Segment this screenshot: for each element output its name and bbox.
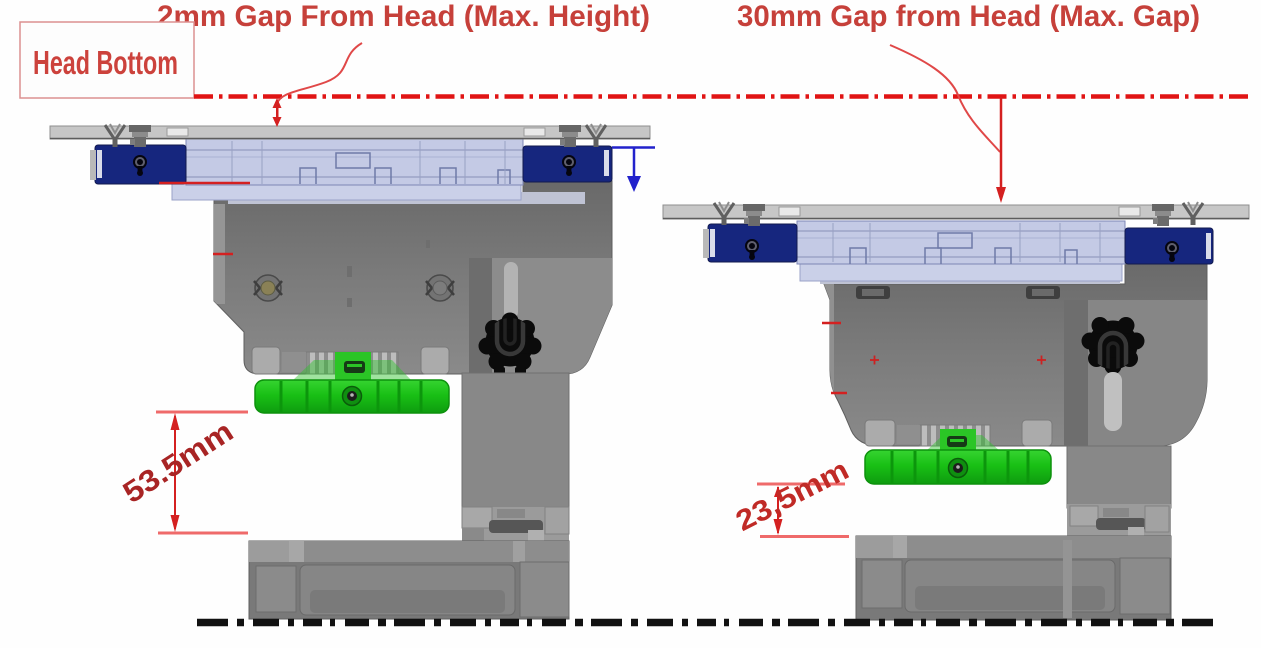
svg-text:Head Bottom: Head Bottom [33,44,178,81]
svg-text:30mm Gap from Head (Max. Gap): 30mm Gap from Head (Max. Gap) [737,0,1200,33]
svg-text:2mm Gap From Head (Max. Height: 2mm Gap From Head (Max. Height) [157,0,650,33]
